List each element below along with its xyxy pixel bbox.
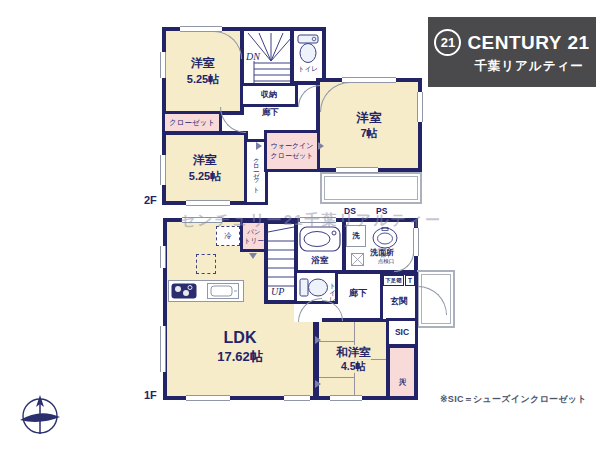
ps-label: PS [376,207,387,217]
fridge-space: 冷 [216,226,240,246]
washer-label: 洗 [352,231,360,241]
room-washitsu: 和洋室 4.5帖 [315,318,392,400]
logo-row: 21 CENTURY 21 [434,29,589,56]
window [300,217,336,223]
room-name: LDK [224,328,257,349]
stairs-up-label: UP [271,286,284,298]
oshiire-label: 押入 [390,348,414,396]
shoebox-label: 下足箱 [385,277,402,284]
storage-2f: 収納 [240,83,298,107]
door-arc [298,85,320,107]
toilet-label: トイレ [294,65,322,72]
pantry-line1: パン [247,227,260,236]
tatami-line [319,377,354,378]
floor-label-1f: 1F [144,389,157,402]
sic-label: SIC [389,321,415,345]
room-name: 洋室 [191,56,215,72]
seal-number: 21 [441,35,455,50]
floor-hatch-icon [351,253,364,266]
room-size: 7帖 [360,126,377,140]
room-2f-west2-label: 洋室 5.25帖 [166,135,244,201]
stairs-dn-label: DN [246,51,260,63]
floorplan-canvas: センチュリー21千葉リアルティー 洋室 5.25帖 クローゼット 洋室 5.25… [0,0,600,450]
pantry-line2: トリー [244,236,264,245]
kitchen-sink-icon [207,283,239,299]
bathtub-icon [299,226,341,252]
compass-north-icon [16,392,64,440]
wic-line1: ウォークイン [271,141,314,152]
window [342,77,396,83]
window [160,326,166,372]
toilet-2f: トイレ [290,27,326,85]
entrance: 下足箱 T 玄関 [380,272,418,322]
bathroom: 浴室 [294,218,346,274]
washbasin-icon [372,227,398,249]
shoebox-t: T [405,275,415,286]
hallway-2f-label: 廊下 [262,108,279,118]
toilet-label: トイレ [329,276,336,302]
door-mark [315,336,321,344]
window [160,246,166,268]
window [186,200,230,206]
room-name: 洋室 [357,110,382,126]
oshiire: 押入 [386,344,418,400]
window [330,395,362,401]
window [186,395,230,401]
logo-subtitle: 千葉リアルティー [440,58,583,75]
door-mark [256,142,262,150]
hatch-line1: 床下 [381,252,392,258]
window [284,395,310,401]
stove-icon [171,283,197,299]
toilet-icon [294,34,322,64]
door-mark [249,253,257,259]
room-size: 5.25帖 [187,72,219,86]
room-name: 洋室 [193,153,217,169]
room-size: 17.62帖 [217,349,263,366]
century21-logo: 21 CENTURY 21 千葉リアルティー [428,17,596,87]
hallway-1f-label: 廊下 [349,288,367,298]
logo-brand: CENTURY 21 [467,32,589,54]
table-space [196,254,216,274]
walkin-closet-2f: ウォークイン クローゼット [264,130,320,172]
shoebox: 下足箱 [383,275,404,286]
balcony-2f [320,172,422,204]
window [417,92,423,122]
kitchen-counter [168,280,244,302]
toilet-icon [299,276,329,300]
window [160,52,166,78]
century21-seal-icon: 21 [434,29,461,56]
entrance-label: 玄関 [383,297,415,307]
closet-label: クローゼット [247,142,265,202]
door-mark [318,142,324,150]
window-balcony-door [336,167,378,173]
wic-line2: クローゼット [271,151,314,162]
ds-label: DS [344,207,356,217]
closet-label: クローゼット [165,114,219,132]
pantry-label: パン トリー [243,223,265,249]
washer-space: 洗 [346,225,366,247]
window [182,217,222,223]
hatch-line2: 点検口 [378,258,395,264]
storage-label: 収納 [243,86,295,104]
stairs-1f: UP [264,220,298,304]
room-size: 5.25帖 [189,169,221,183]
tatami-line [319,341,354,342]
window [160,155,166,185]
door-mark [315,380,321,388]
shoebox-t-label: T [408,277,412,284]
sic-note: ※SIC＝シューズインクローゼット [440,393,587,406]
bathroom-label: 浴室 [298,256,342,266]
room-2f-west2: 洋室 5.25帖 [162,131,248,205]
door-arc [220,107,246,133]
floor-label-2f: 2F [144,194,157,207]
tatami-line [354,359,388,360]
fridge-label: 冷 [217,227,239,245]
walkin-closet-label: ウォークイン クローゼット [267,133,317,169]
